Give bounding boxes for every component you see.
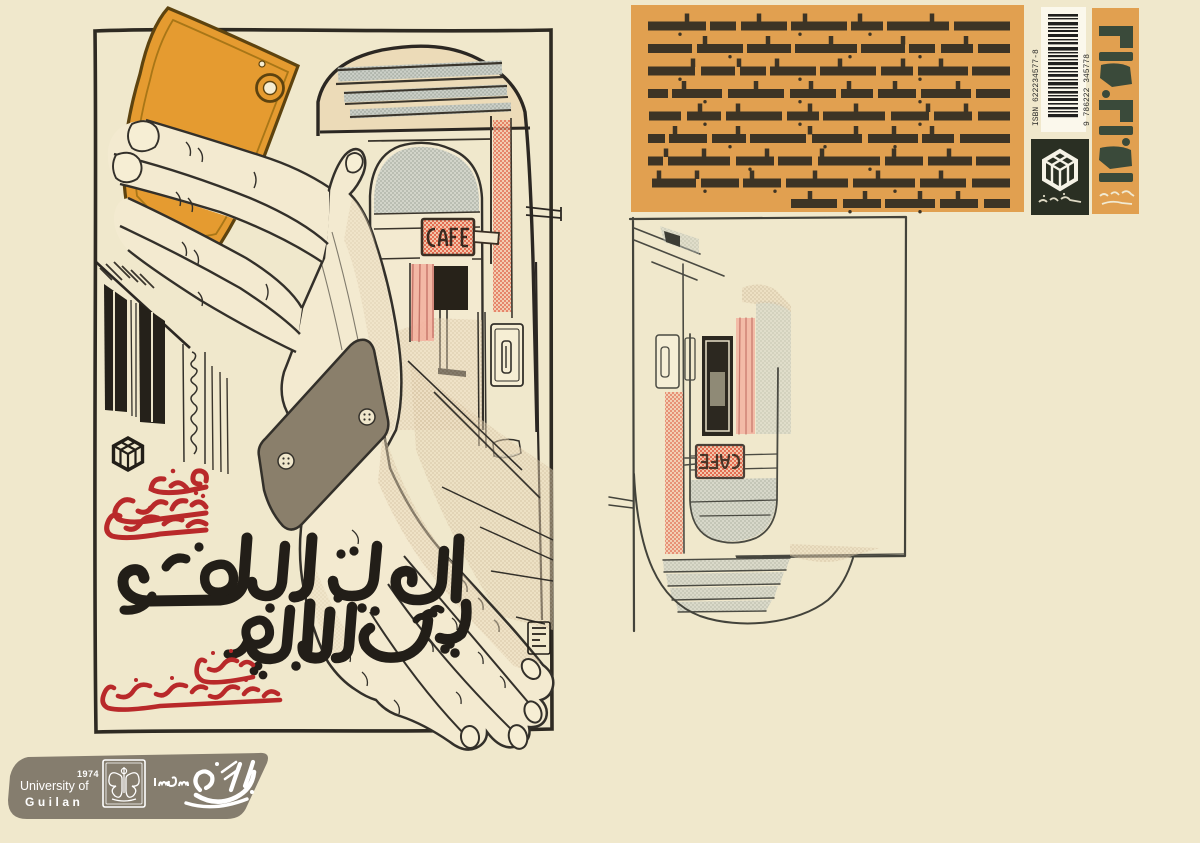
svg-text:1974: 1974 [77,769,99,779]
svg-text:Guilan: Guilan [25,795,83,809]
svg-text:9 786222 345778: 9 786222 345778 [1083,54,1092,126]
svg-text:University of: University of [20,779,89,793]
svg-text:ISBN 622234577-8: ISBN 622234577-8 [1032,49,1041,126]
